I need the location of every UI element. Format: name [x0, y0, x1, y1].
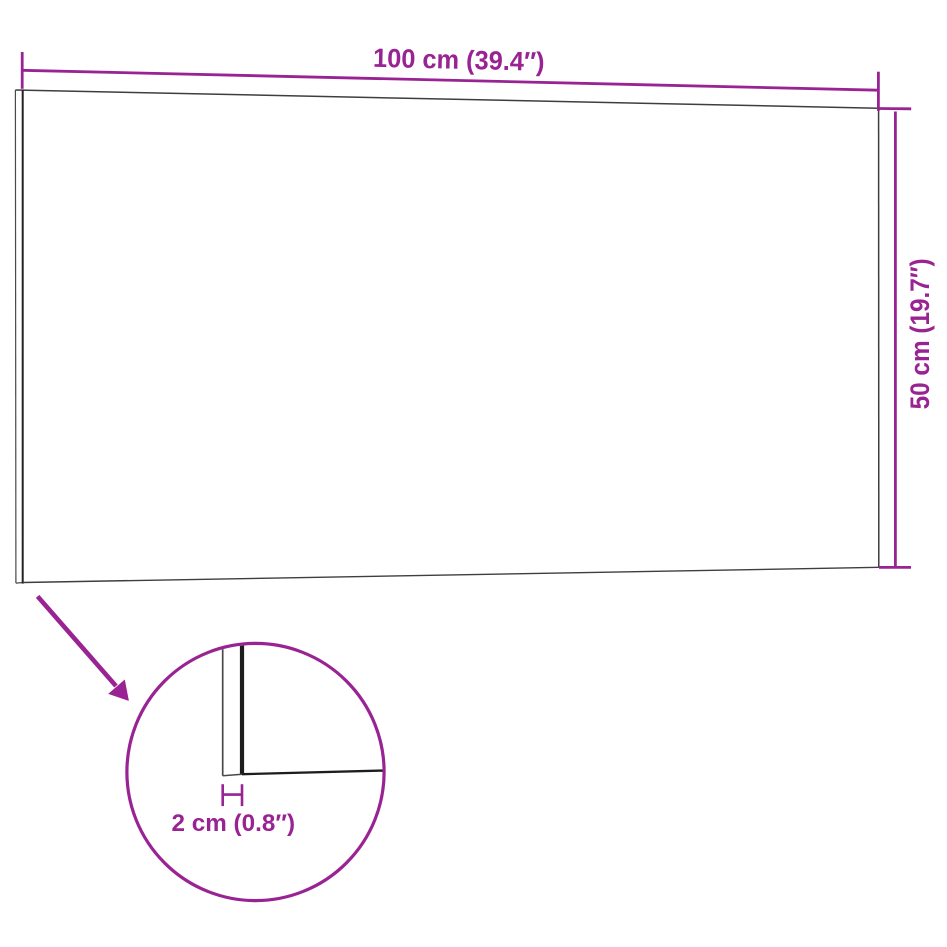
svg-text:50 cm (19.7″): 50 cm (19.7″)	[905, 258, 935, 409]
svg-text:100 cm (39.4″): 100 cm (39.4″)	[373, 43, 545, 77]
svg-text:2 cm (0.8″): 2 cm (0.8″)	[172, 810, 296, 837]
